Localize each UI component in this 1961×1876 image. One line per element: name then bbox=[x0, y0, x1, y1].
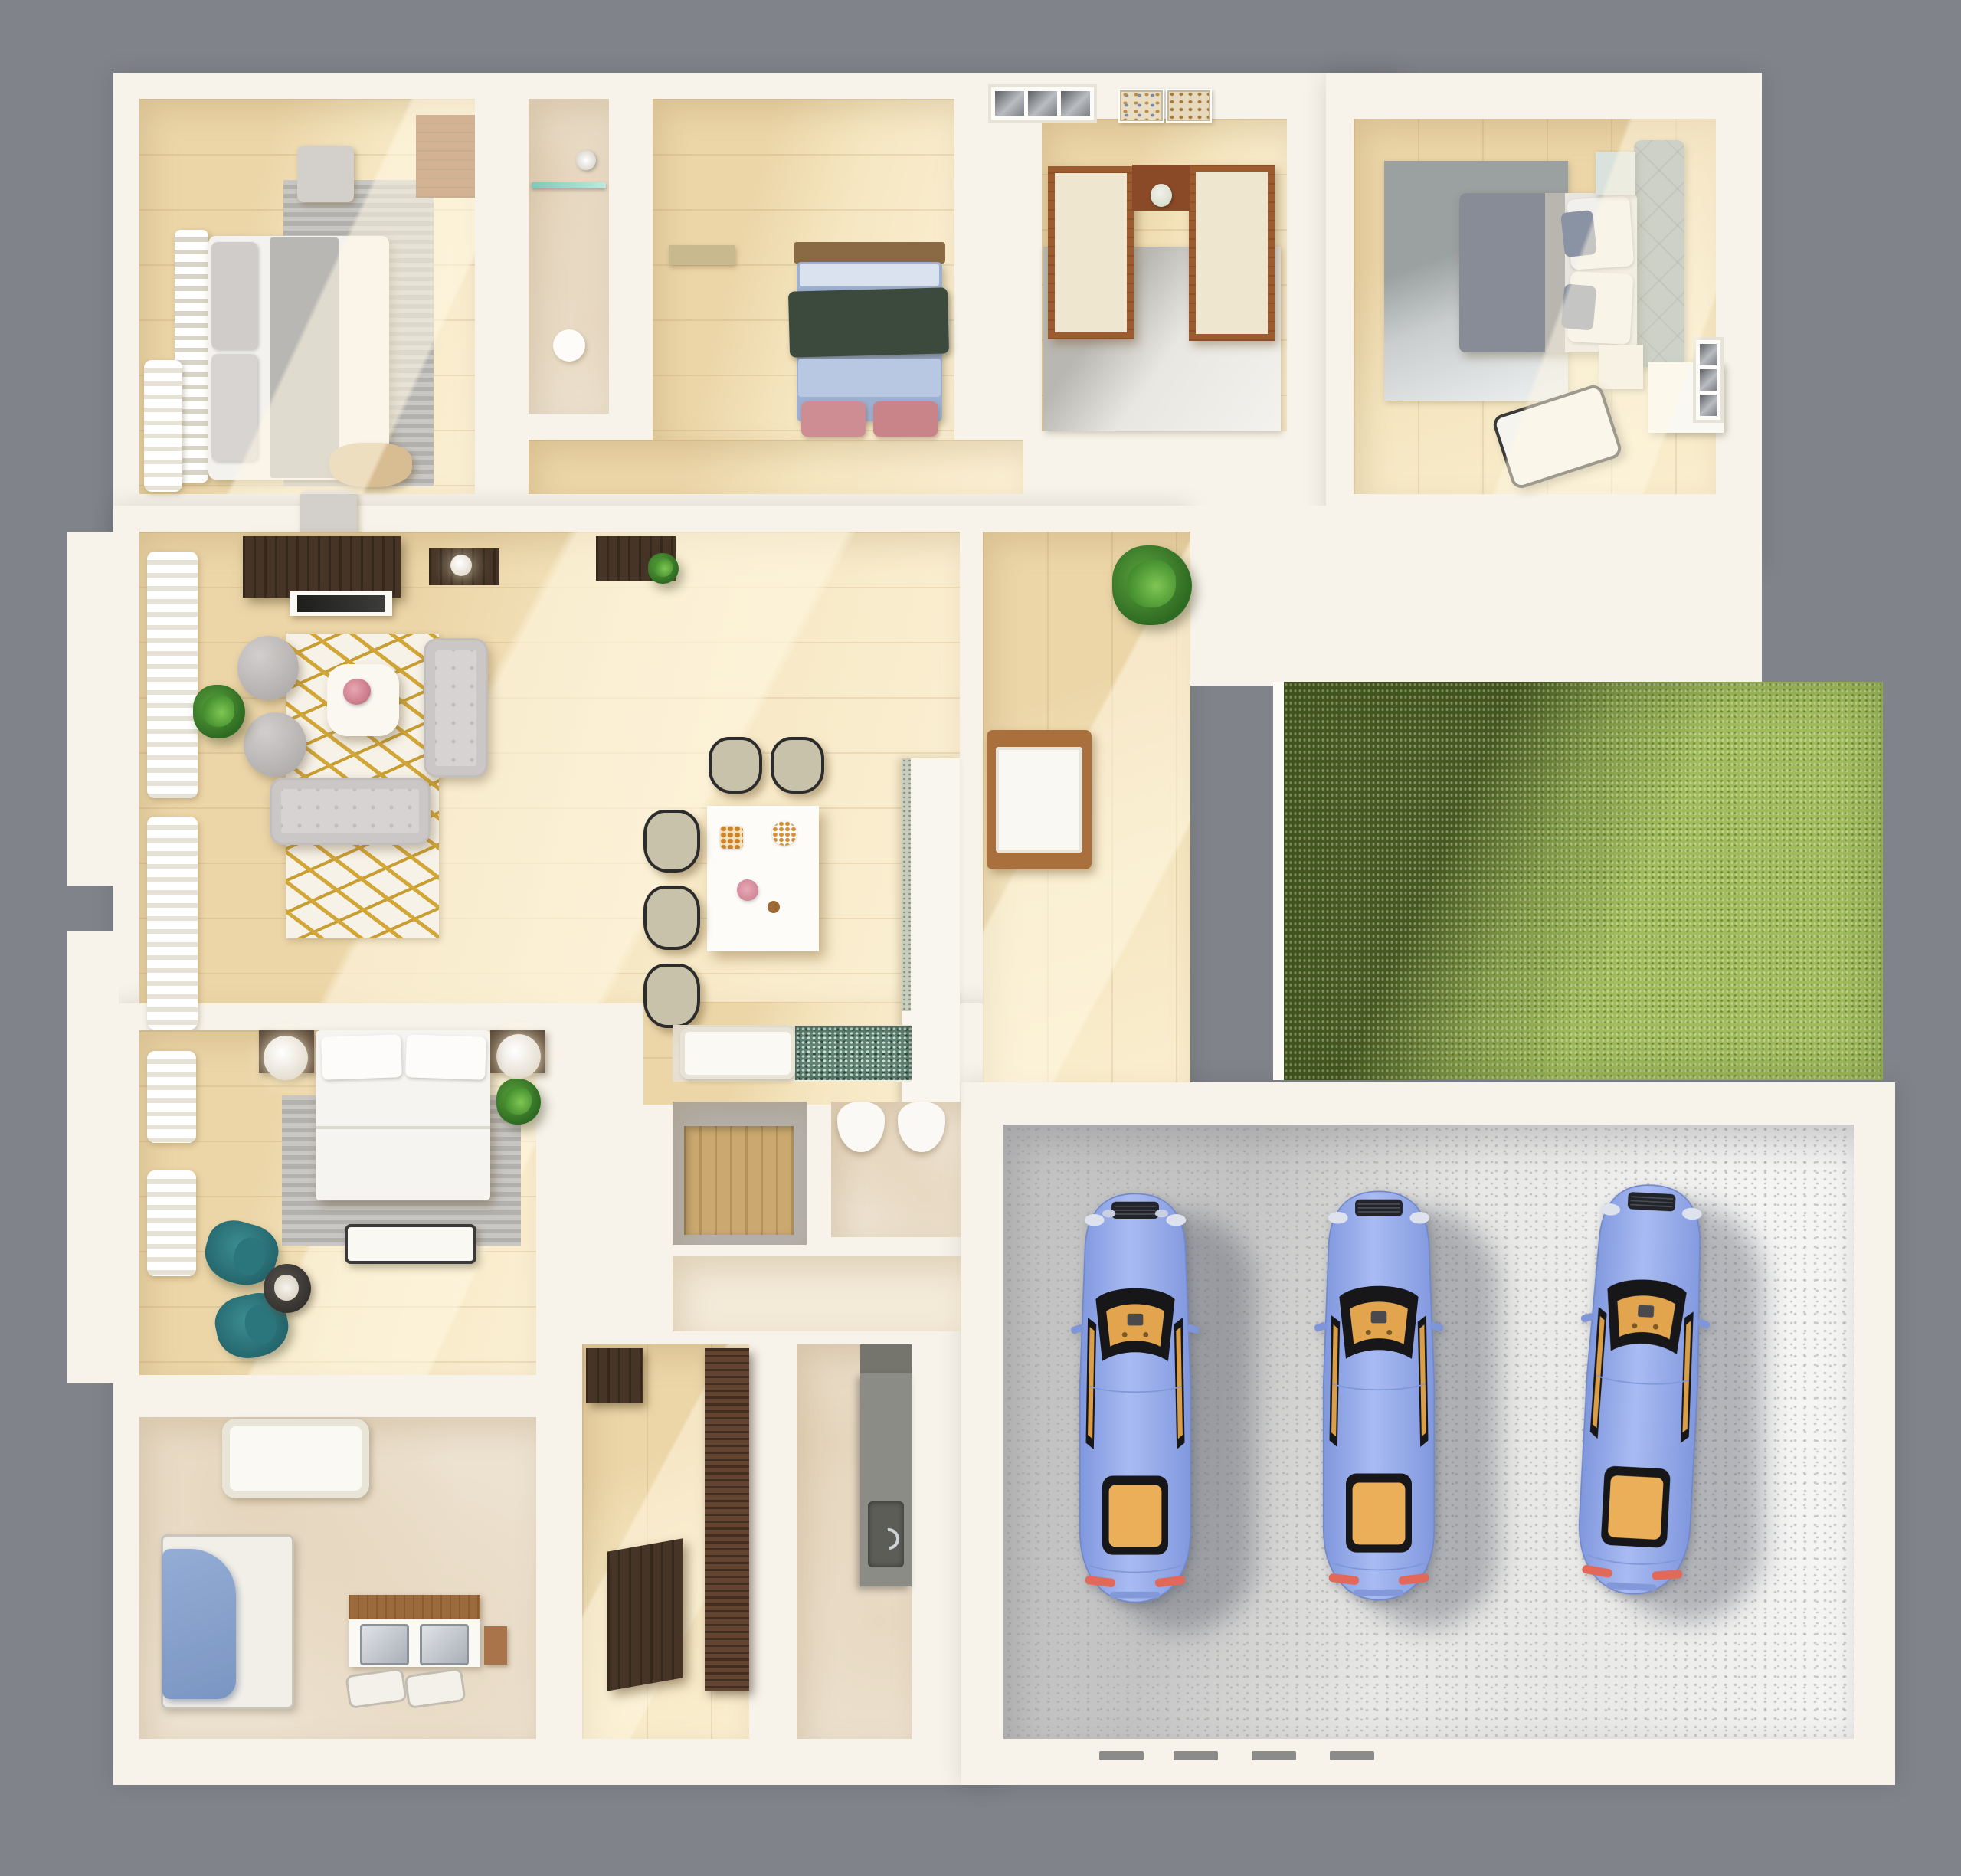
bedroom1-pillow-top bbox=[211, 242, 257, 349]
kitchen-upper-cabinet bbox=[586, 1348, 643, 1403]
mudroom-upper-cabinet bbox=[860, 1344, 912, 1373]
kids-bed-headboard bbox=[794, 242, 945, 264]
master-pillow-right bbox=[405, 1034, 486, 1080]
kitchen-counter-edge bbox=[902, 758, 911, 1011]
shower-glass-shelf bbox=[532, 182, 606, 188]
car-blue-2 bbox=[1313, 1186, 1445, 1615]
window-pane bbox=[1700, 395, 1717, 416]
bedroom1-ottoman-cube-top bbox=[297, 146, 354, 202]
master-plant bbox=[496, 1079, 541, 1125]
bathtub-teal-water bbox=[795, 1026, 912, 1080]
study-art-print-1 bbox=[1118, 89, 1164, 123]
bedroom2-gray-duvet bbox=[1459, 193, 1545, 352]
master-duvet-seam bbox=[316, 1126, 490, 1129]
master-pillow-left bbox=[321, 1034, 402, 1080]
bedroom2-window bbox=[1693, 337, 1724, 423]
living-shelf-lamp bbox=[450, 555, 472, 576]
dining-chair-top-2 bbox=[771, 737, 824, 794]
kids-pink-ottoman-left bbox=[801, 401, 866, 437]
kids-pink-ottoman-right bbox=[873, 401, 938, 437]
kitchen-tall-cabinet bbox=[705, 1348, 749, 1691]
living-shelf-plant bbox=[648, 553, 679, 584]
hall-bench-cushion bbox=[996, 747, 1082, 853]
bedroom1-bench bbox=[329, 443, 412, 487]
window-pane bbox=[1700, 369, 1717, 391]
garage-vent-2 bbox=[1174, 1751, 1218, 1760]
dining-place-setting-2 bbox=[772, 821, 797, 846]
living-curtain-bottom bbox=[147, 817, 198, 1030]
hall-palm-plant bbox=[1112, 545, 1192, 625]
dining-flower-vase bbox=[737, 879, 758, 901]
window-pane bbox=[995, 91, 1024, 116]
room-hallway-bedroom-wing bbox=[529, 440, 1023, 494]
master-table-flowers bbox=[274, 1275, 299, 1301]
shower-drain bbox=[553, 329, 585, 362]
bedroom2-cushion-bottom bbox=[1561, 283, 1597, 330]
room-shower bbox=[529, 99, 609, 414]
window-pane bbox=[1028, 91, 1057, 116]
kitchen-island bbox=[607, 1538, 683, 1691]
lawn-curb bbox=[1273, 682, 1284, 1080]
wall-bay-bedroom bbox=[67, 931, 119, 1383]
bathtub-white-deck bbox=[680, 1027, 795, 1079]
bathroom-tub bbox=[222, 1419, 369, 1498]
study-vase-icon bbox=[1151, 184, 1172, 207]
living-tv-screen bbox=[297, 595, 385, 612]
study-window bbox=[988, 84, 1097, 123]
master-curtain-top bbox=[147, 1051, 196, 1143]
bathroom-vanity-top bbox=[349, 1595, 480, 1619]
car-blue-3 bbox=[1559, 1177, 1724, 1612]
bedroom1-curtain bbox=[144, 360, 182, 492]
kids-desk-shelf bbox=[669, 245, 735, 265]
bedroom2-nightstand-bottom bbox=[1599, 345, 1643, 389]
study-desk-left-top bbox=[1055, 173, 1127, 332]
dining-chair-left-1 bbox=[643, 810, 700, 873]
window-pane bbox=[1061, 91, 1090, 116]
study-desk-right-top bbox=[1196, 172, 1268, 334]
bathroom-side-cabinet bbox=[484, 1626, 507, 1665]
kids-bed-green-blanket bbox=[788, 287, 949, 357]
closet-wood-panel bbox=[684, 1126, 794, 1235]
shower-head-icon bbox=[576, 150, 596, 170]
garage-vent-1 bbox=[1099, 1751, 1144, 1760]
living-media-console bbox=[243, 536, 401, 598]
bedroom2-cushion-top bbox=[1560, 210, 1597, 257]
room-lawn bbox=[1284, 682, 1883, 1080]
study-art-print-2 bbox=[1166, 89, 1212, 123]
master-lamp-right bbox=[496, 1034, 541, 1079]
bathroom-sink-right bbox=[420, 1624, 469, 1665]
floor-plan-scene bbox=[0, 0, 1961, 1876]
wall-slab-terrace bbox=[1190, 506, 1762, 686]
living-pouf-1 bbox=[237, 636, 299, 700]
master-lamp-left bbox=[264, 1036, 308, 1080]
living-plant bbox=[193, 685, 245, 738]
car-blue-1 bbox=[1069, 1188, 1201, 1617]
bathroom-sink-left bbox=[360, 1624, 409, 1665]
bedroom2-headboard bbox=[1634, 140, 1684, 367]
dining-bowl bbox=[768, 901, 780, 913]
kids-bed-sheet-top bbox=[800, 264, 939, 286]
bedroom1-pillow-bottom bbox=[211, 354, 257, 461]
living-pouf-2 bbox=[244, 712, 306, 777]
wall-bay-living bbox=[67, 532, 119, 886]
living-sofa-vertical bbox=[424, 638, 488, 778]
master-bench bbox=[345, 1224, 476, 1264]
room-corridor-lower bbox=[673, 1256, 961, 1331]
dining-chair-top-1 bbox=[709, 737, 762, 794]
garage-vent-4 bbox=[1330, 1751, 1374, 1760]
bedroom1-wardrobe bbox=[416, 115, 475, 198]
dining-place-setting-1 bbox=[720, 826, 743, 849]
bedroom2-nightstand-top bbox=[1596, 152, 1635, 195]
living-sofa-horizontal bbox=[270, 778, 431, 845]
window-pane bbox=[1700, 344, 1717, 365]
garage-vent-3 bbox=[1252, 1751, 1296, 1760]
dining-chair-left-3 bbox=[643, 964, 700, 1028]
living-curtain-top bbox=[147, 552, 198, 798]
bathroom-shower-glass-panel bbox=[162, 1549, 236, 1699]
kids-bed-sheet-bottom bbox=[798, 359, 941, 397]
bedroom1-gray-blanket bbox=[270, 237, 339, 478]
dining-chair-left-2 bbox=[643, 886, 700, 950]
master-curtain-bottom bbox=[147, 1170, 196, 1276]
